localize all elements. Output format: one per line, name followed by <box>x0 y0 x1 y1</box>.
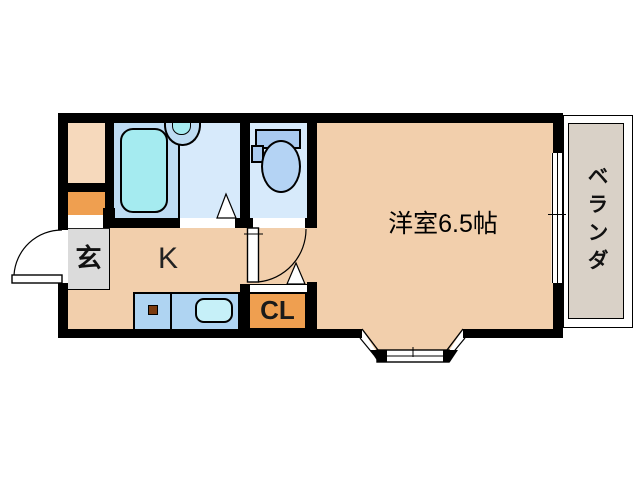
toilet-door-opening <box>253 218 305 228</box>
wall-left-upper <box>58 113 68 230</box>
main-room-label: 洋室6.5帖 <box>368 206 518 238</box>
stove-point-icon <box>148 305 158 315</box>
wash-basin-bowl-icon <box>172 123 191 135</box>
veranda-label: ベランダ <box>568 123 624 319</box>
bay-window-corner-left <box>370 350 387 362</box>
bay-window-inner-right <box>447 329 463 350</box>
bay-window-glass <box>377 350 449 362</box>
wall-mainroom-left-lower <box>307 282 317 329</box>
wall-washroom-toilet <box>240 123 250 218</box>
wall-bottom-right <box>463 329 563 338</box>
veranda-window-band <box>552 153 564 283</box>
floor-plan-canvas: 玄 K CL 洋室6.5帖 ベランダ <box>0 0 638 480</box>
bay-window-floor <box>362 329 463 351</box>
kitchen-stove-cell <box>135 294 172 329</box>
bay-window-outer-left <box>360 338 374 355</box>
bath-washroom-divider <box>178 145 180 218</box>
shoe-cabinet <box>68 192 105 215</box>
kitchen-sink <box>195 298 233 323</box>
bathtub <box>120 128 168 213</box>
bay-window-inner-left <box>362 329 378 350</box>
bay-window-corner-right <box>443 350 458 362</box>
wall-right-lower <box>553 283 563 334</box>
kitchen-label: K <box>133 242 203 276</box>
wall-bath-bottom-a <box>114 218 180 228</box>
wall-toilet-right <box>307 123 317 225</box>
entrance-door-opening <box>58 230 68 283</box>
wall-right-upper <box>553 113 563 153</box>
entrance-door-leaf <box>12 275 62 283</box>
closet-label: CL <box>248 294 307 326</box>
wall-bath-bottom-b <box>235 218 253 228</box>
entrance-label: 玄 <box>68 228 109 284</box>
toilet-icon <box>261 140 301 193</box>
kitchen-counter <box>133 292 240 331</box>
bay-window-outer-right <box>451 338 465 355</box>
storage-area <box>68 123 105 183</box>
wall-storage-divider <box>58 183 106 192</box>
entrance-door-swing-arc <box>14 230 62 275</box>
washroom-door-opening <box>180 218 235 228</box>
wall-top <box>58 113 563 123</box>
